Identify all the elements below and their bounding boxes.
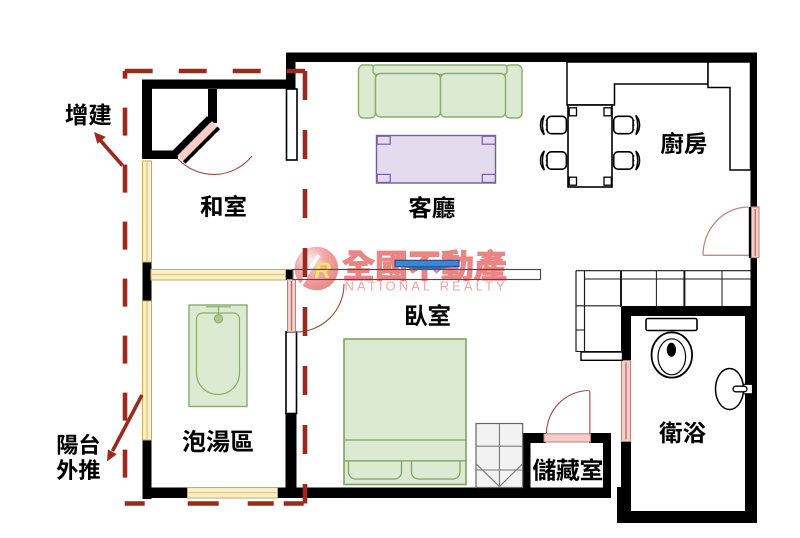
svg-text:NATIONAL REALTY: NATIONAL REALTY (345, 279, 508, 294)
